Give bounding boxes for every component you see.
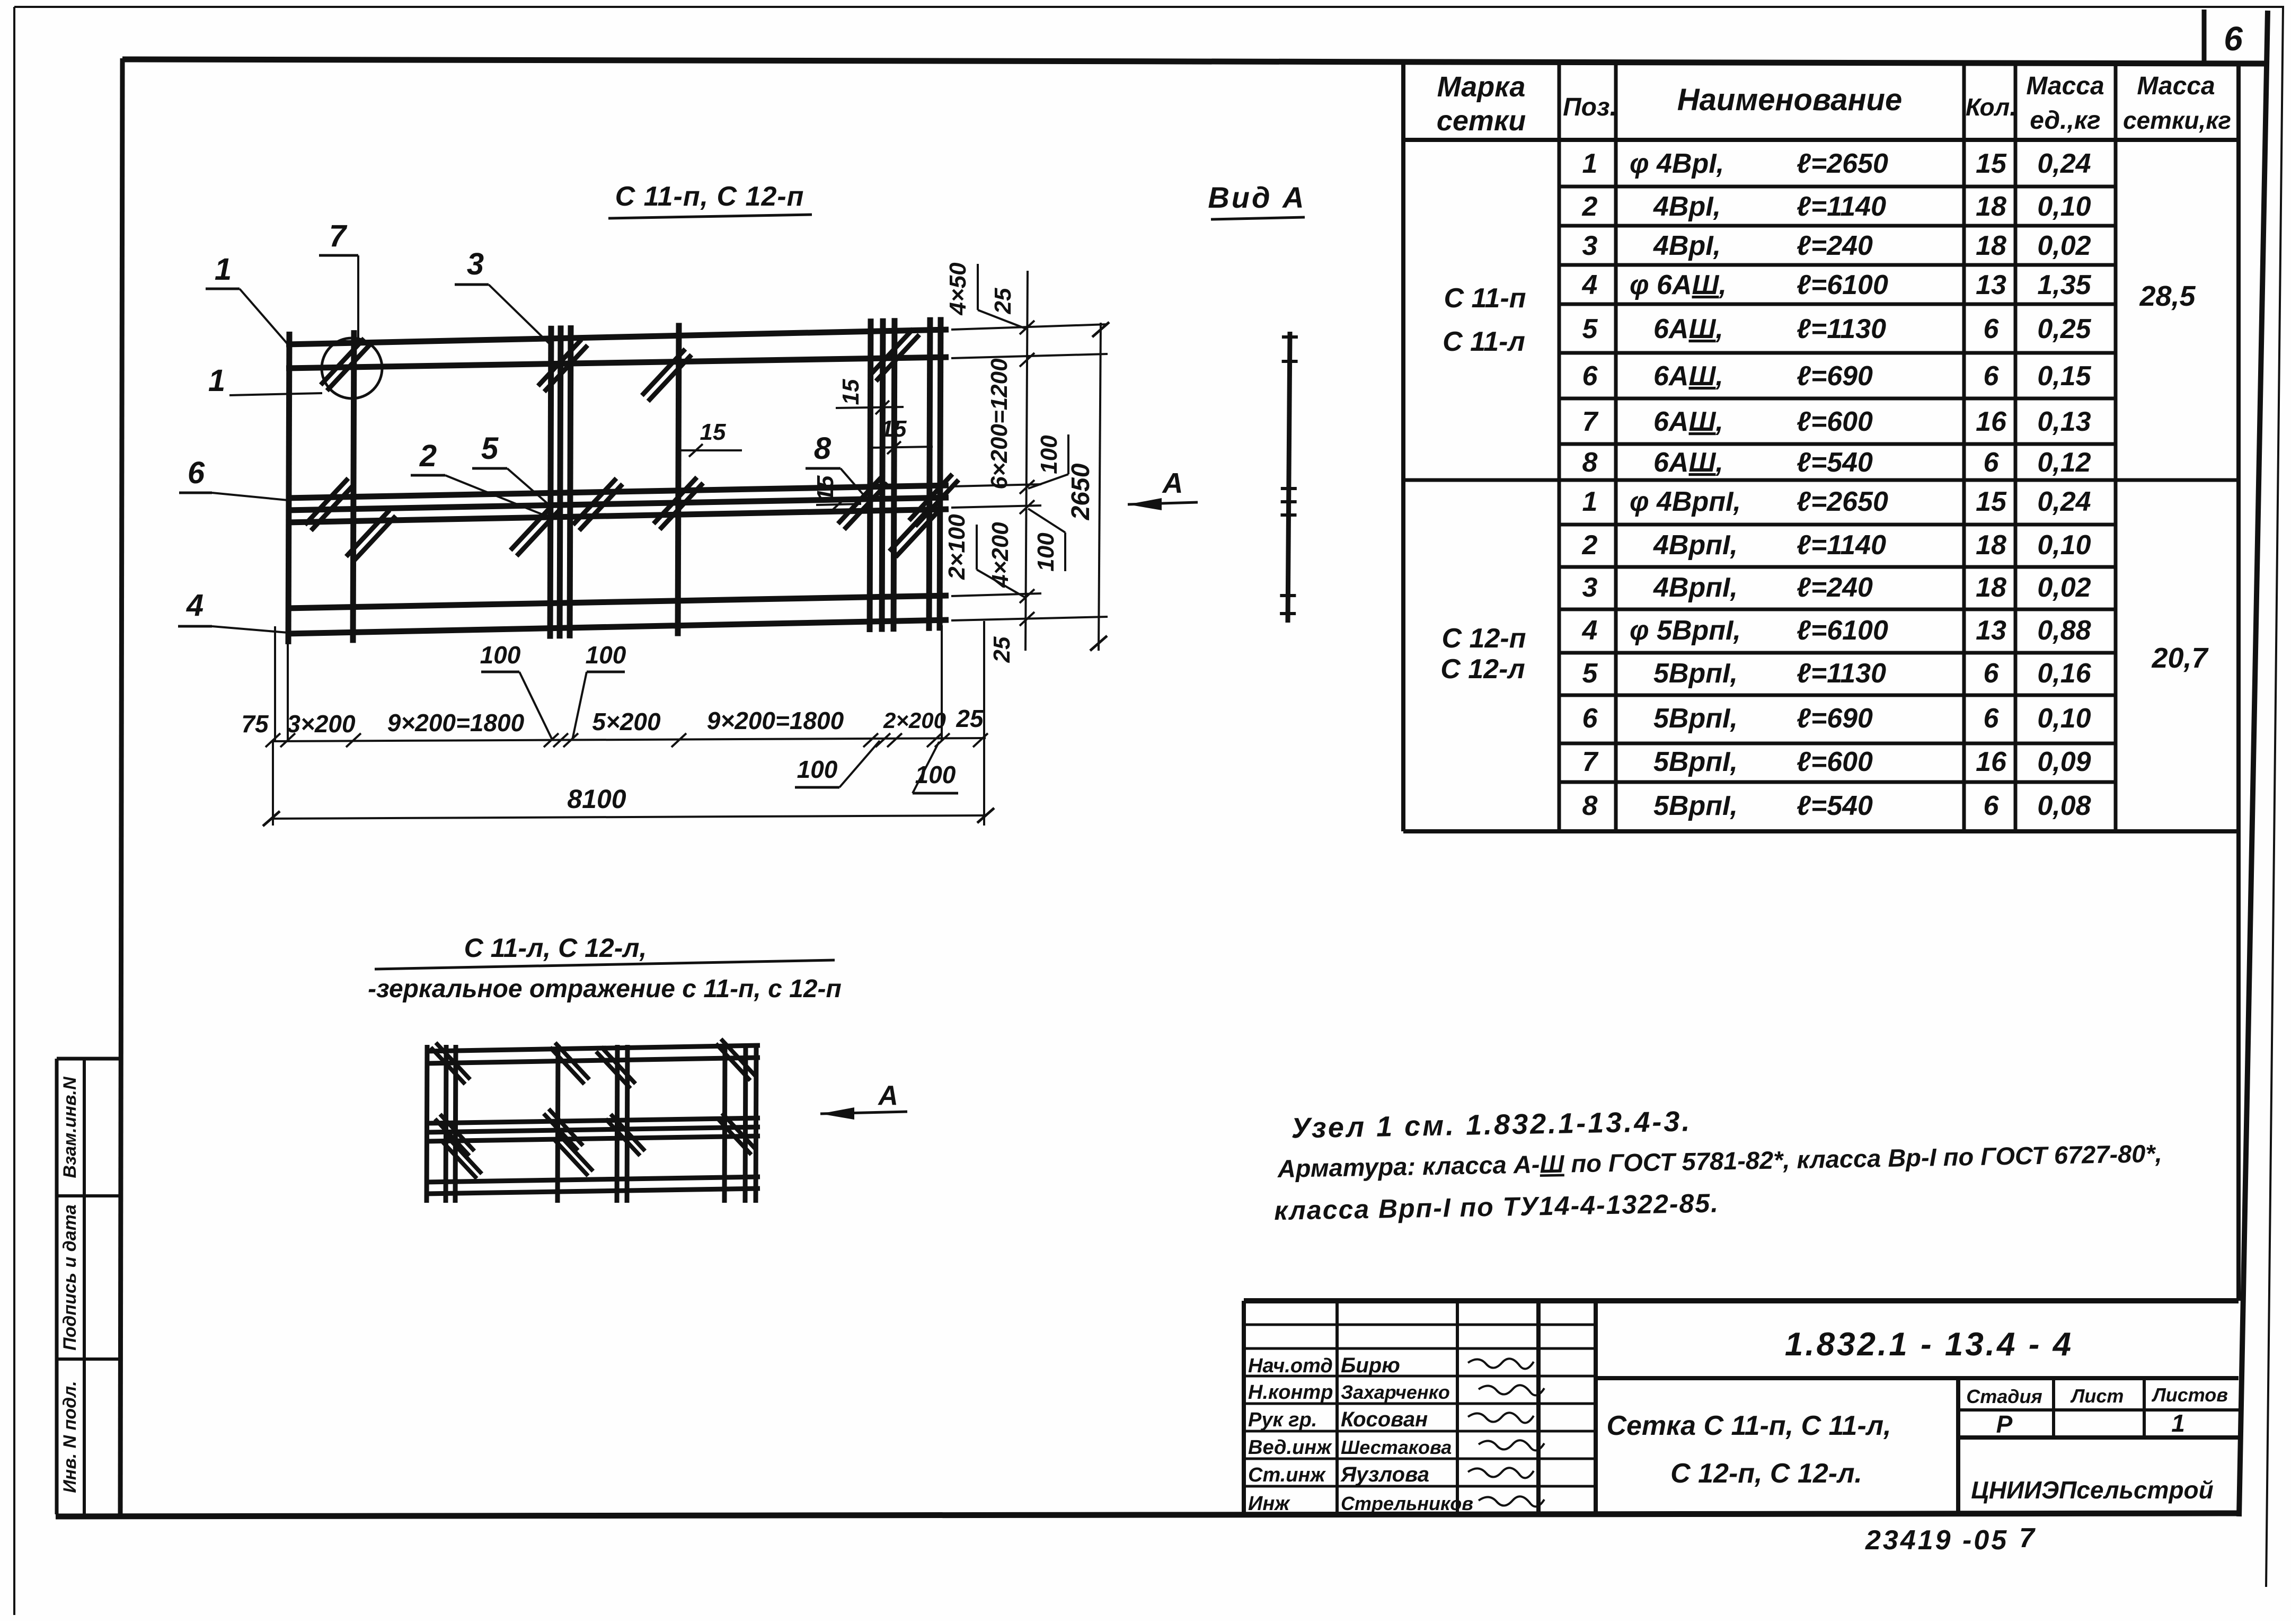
- svg-text:Подпись и дата: Подпись и дата: [60, 1204, 80, 1351]
- svg-text:15: 15: [700, 419, 726, 445]
- svg-text:6: 6: [1582, 361, 1598, 392]
- svg-text:ℓ=600: ℓ=600: [1797, 406, 1873, 437]
- svg-text:5ВрпI,: 5ВрпI,: [1653, 658, 1738, 689]
- svg-text:6: 6: [188, 456, 205, 490]
- svg-text:2: 2: [1582, 530, 1598, 561]
- svg-text:15: 15: [1976, 486, 2007, 517]
- svg-text:1: 1: [1582, 486, 1598, 517]
- svg-text:6: 6: [1984, 791, 2000, 821]
- svg-text:0,16: 0,16: [2037, 658, 2091, 689]
- svg-text:ℓ=2650: ℓ=2650: [1797, 148, 1888, 179]
- svg-text:23419 -05: 23419 -05: [1865, 1525, 2009, 1556]
- svg-text:5ВрпI,: 5ВрпI,: [1653, 747, 1738, 777]
- svg-text:1.832.1 - 13.4 - 4: 1.832.1 - 13.4 - 4: [1785, 1326, 2073, 1363]
- svg-text:5: 5: [1582, 314, 1598, 344]
- svg-text:6АШ,: 6АШ,: [1653, 361, 1723, 392]
- svg-text:С 12-п, С 12-л.: С 12-п, С 12-л.: [1670, 1458, 1862, 1489]
- svg-text:100: 100: [480, 641, 521, 669]
- svg-text:4ВрI,: 4ВрI,: [1653, 230, 1721, 261]
- svg-text:ℓ=1140: ℓ=1140: [1797, 191, 1886, 222]
- svg-text:φ 5ВрпI,: φ 5ВрпI,: [1630, 615, 1741, 646]
- svg-text:2: 2: [1582, 191, 1598, 222]
- svg-text:18: 18: [1976, 191, 2006, 222]
- svg-text:5ВрпI,: 5ВрпI,: [1653, 791, 1738, 821]
- svg-text:Марка: Марка: [1437, 71, 1526, 103]
- svg-text:15: 15: [1976, 148, 2007, 179]
- svg-text:18: 18: [1976, 530, 2006, 561]
- svg-text:ЦНИИЭПсельстрой: ЦНИИЭПсельстрой: [1971, 1476, 2214, 1504]
- svg-text:6: 6: [1582, 703, 1598, 734]
- svg-text:75: 75: [241, 710, 269, 738]
- svg-text:ℓ=1140: ℓ=1140: [1797, 530, 1886, 561]
- svg-text:2: 2: [419, 439, 437, 473]
- svg-text:ℓ=540: ℓ=540: [1797, 791, 1873, 821]
- svg-text:100: 100: [797, 756, 838, 783]
- svg-text:сетки,кг: сетки,кг: [2123, 107, 2231, 134]
- svg-text:20,7: 20,7: [2151, 642, 2209, 674]
- svg-text:0,15: 0,15: [2037, 361, 2091, 392]
- svg-text:ℓ=6100: ℓ=6100: [1797, 615, 1888, 646]
- svg-text:7: 7: [1582, 747, 1599, 777]
- svg-text:13: 13: [1976, 615, 2006, 646]
- svg-text:3: 3: [1582, 572, 1598, 603]
- svg-text:7: 7: [2019, 1523, 2036, 1554]
- svg-text:0,25: 0,25: [2037, 314, 2091, 344]
- svg-text:0,10: 0,10: [2037, 191, 2091, 222]
- svg-text:1: 1: [1582, 148, 1598, 179]
- svg-text:0,24: 0,24: [2037, 486, 2091, 517]
- svg-text:Кол.: Кол.: [1966, 93, 2016, 121]
- svg-text:1,35: 1,35: [2037, 270, 2091, 300]
- svg-text:6: 6: [2224, 20, 2243, 58]
- svg-text:18: 18: [1976, 230, 2006, 261]
- svg-text:25: 25: [990, 288, 1016, 314]
- svg-text:ℓ=240: ℓ=240: [1797, 572, 1873, 603]
- svg-text:Нач.отд: Нач.отд: [1248, 1355, 1333, 1377]
- svg-text:Взам.инв.N: Взам.инв.N: [60, 1076, 80, 1178]
- svg-text:сетки: сетки: [1437, 105, 1526, 137]
- svg-text:0,12: 0,12: [2037, 447, 2091, 478]
- svg-text:ℓ=540: ℓ=540: [1797, 447, 1873, 478]
- svg-text:ℓ=1130: ℓ=1130: [1797, 658, 1886, 689]
- svg-text:8: 8: [1582, 791, 1598, 821]
- svg-text:6: 6: [1984, 447, 2000, 478]
- svg-text:8: 8: [1582, 447, 1598, 478]
- svg-text:0,13: 0,13: [2037, 406, 2091, 437]
- svg-text:Яузлова: Яузлова: [1340, 1463, 1429, 1486]
- svg-text:5: 5: [1582, 658, 1598, 689]
- svg-text:7: 7: [1582, 406, 1599, 437]
- svg-text:0,10: 0,10: [2037, 703, 2091, 734]
- svg-text:φ 6АШ,: φ 6АШ,: [1630, 270, 1727, 300]
- svg-text:ℓ=690: ℓ=690: [1797, 361, 1873, 392]
- svg-text:6АШ,: 6АШ,: [1653, 406, 1723, 437]
- svg-text:Масса: Масса: [2137, 72, 2215, 100]
- svg-text:Рук гр.: Рук гр.: [1248, 1409, 1317, 1431]
- svg-text:0,08: 0,08: [2037, 791, 2091, 821]
- svg-text:28,5: 28,5: [2139, 280, 2196, 312]
- svg-text:Стрельников: Стрельников: [1341, 1493, 1473, 1514]
- svg-text:4: 4: [1582, 615, 1598, 646]
- svg-text:А: А: [1162, 467, 1183, 499]
- svg-text:5: 5: [481, 431, 499, 466]
- svg-text:6: 6: [1984, 658, 2000, 689]
- svg-text:1: 1: [215, 252, 232, 287]
- svg-text:ℓ=6100: ℓ=6100: [1797, 270, 1888, 300]
- svg-text:100: 100: [1033, 533, 1059, 572]
- svg-text:15: 15: [838, 379, 864, 405]
- svg-text:6АШ,: 6АШ,: [1653, 314, 1723, 344]
- svg-text:9×200=1800: 9×200=1800: [387, 709, 525, 736]
- svg-text:4ВрпI,: 4ВрпI,: [1653, 530, 1738, 561]
- svg-text:13: 13: [1976, 270, 2006, 300]
- svg-text:4ВрпI,: 4ВрпI,: [1653, 572, 1738, 603]
- svg-text:15: 15: [812, 475, 838, 501]
- svg-text:1: 1: [208, 363, 225, 398]
- svg-text:С 11-л: С 11-л: [1443, 326, 1525, 357]
- svg-text:С 11-л, С 12-л,: С 11-л, С 12-л,: [464, 933, 647, 963]
- svg-text:6: 6: [1984, 361, 2000, 392]
- svg-text:ℓ=690: ℓ=690: [1797, 703, 1873, 734]
- svg-text:15: 15: [881, 416, 907, 442]
- svg-text:0,02: 0,02: [2037, 230, 2091, 261]
- svg-text:ℓ=240: ℓ=240: [1797, 230, 1873, 261]
- svg-text:С 12-п: С 12-п: [1442, 623, 1526, 654]
- svg-text:6АШ,: 6АШ,: [1653, 447, 1723, 478]
- svg-text:6×200=1200: 6×200=1200: [986, 358, 1012, 490]
- svg-text:4: 4: [186, 588, 204, 623]
- svg-text:4ВрI,: 4ВрI,: [1653, 191, 1721, 222]
- svg-text:25: 25: [989, 636, 1015, 663]
- svg-text:Косован: Косован: [1341, 1408, 1428, 1431]
- svg-text:3: 3: [1582, 230, 1598, 261]
- svg-text:4: 4: [1582, 270, 1598, 300]
- svg-text:Н.контр: Н.контр: [1248, 1381, 1333, 1404]
- svg-text:Инж: Инж: [1248, 1493, 1290, 1515]
- svg-text:Бирю: Бирю: [1341, 1354, 1400, 1377]
- svg-text:18: 18: [1976, 572, 2006, 603]
- svg-text:ед.,кг: ед.,кг: [2030, 107, 2101, 135]
- svg-text:0,24: 0,24: [2037, 148, 2091, 179]
- svg-text:25: 25: [956, 705, 984, 732]
- svg-text:Захарченко: Захарченко: [1341, 1381, 1450, 1403]
- svg-text:А: А: [877, 1080, 898, 1111]
- svg-text:4×200: 4×200: [987, 522, 1013, 588]
- svg-text:ℓ=600: ℓ=600: [1797, 747, 1873, 777]
- svg-text:Р: Р: [1996, 1410, 2013, 1438]
- svg-text:6: 6: [1984, 314, 2000, 344]
- svg-text:ℓ=2650: ℓ=2650: [1797, 486, 1888, 517]
- svg-text:0,88: 0,88: [2037, 615, 2091, 646]
- svg-text:С 11-п, С 12-п: С 11-п, С 12-п: [615, 181, 804, 212]
- svg-text:Лист: Лист: [2070, 1385, 2124, 1407]
- svg-text:ℓ=1130: ℓ=1130: [1797, 314, 1886, 344]
- svg-text:Сетка С 11-п, С 11-л,: Сетка С 11-п, С 11-л,: [1606, 1410, 1891, 1441]
- svg-text:Шестакова: Шестакова: [1341, 1436, 1452, 1458]
- svg-text:Инв. N подл.: Инв. N подл.: [60, 1381, 80, 1493]
- svg-text:Вед.инж: Вед.инж: [1248, 1436, 1332, 1459]
- svg-text:2×200: 2×200: [883, 708, 946, 733]
- svg-text:5×200: 5×200: [592, 708, 661, 735]
- svg-text:0,09: 0,09: [2037, 747, 2091, 777]
- svg-text:3: 3: [467, 247, 484, 281]
- svg-text:7: 7: [329, 219, 348, 253]
- svg-text:0,10: 0,10: [2037, 530, 2091, 561]
- svg-text:3×200: 3×200: [287, 710, 356, 738]
- svg-text:4×50: 4×50: [945, 262, 971, 316]
- svg-text:Поз.: Поз.: [1563, 93, 1617, 121]
- svg-text:8100: 8100: [567, 784, 626, 814]
- svg-text:-зеркальное отражение с 11-п,: -зеркальное отражение с 11-п, с 12-п: [368, 975, 842, 1003]
- svg-text:Стадия: Стадия: [1966, 1386, 2042, 1407]
- svg-text:2×100: 2×100: [944, 514, 970, 580]
- svg-text:6: 6: [1984, 703, 2000, 734]
- svg-text:16: 16: [1976, 747, 2007, 777]
- svg-text:Наименование: Наименование: [1677, 83, 1902, 117]
- svg-text:0,02: 0,02: [2037, 572, 2091, 603]
- svg-text:φ 4ВрI,: φ 4ВрI,: [1630, 148, 1724, 179]
- svg-text:φ 4ВрпI,: φ 4ВрпI,: [1630, 486, 1741, 517]
- svg-text:Вид А: Вид А: [1208, 181, 1306, 214]
- svg-text:С 12-л: С 12-л: [1440, 654, 1525, 685]
- svg-text:2650: 2650: [1067, 463, 1095, 520]
- svg-text:Ст.инж: Ст.инж: [1248, 1464, 1326, 1486]
- svg-text:8: 8: [814, 431, 832, 466]
- svg-text:Масса: Масса: [2026, 72, 2104, 100]
- svg-text:100: 100: [1036, 435, 1062, 474]
- svg-text:16: 16: [1976, 406, 2007, 437]
- svg-text:9×200=1800: 9×200=1800: [707, 707, 844, 734]
- svg-text:5ВрпI,: 5ВрпI,: [1653, 703, 1738, 734]
- svg-text:Листов: Листов: [2151, 1384, 2228, 1406]
- svg-text:1: 1: [2171, 1409, 2185, 1437]
- svg-text:С 11-п: С 11-п: [1444, 283, 1526, 314]
- svg-text:100: 100: [586, 641, 626, 669]
